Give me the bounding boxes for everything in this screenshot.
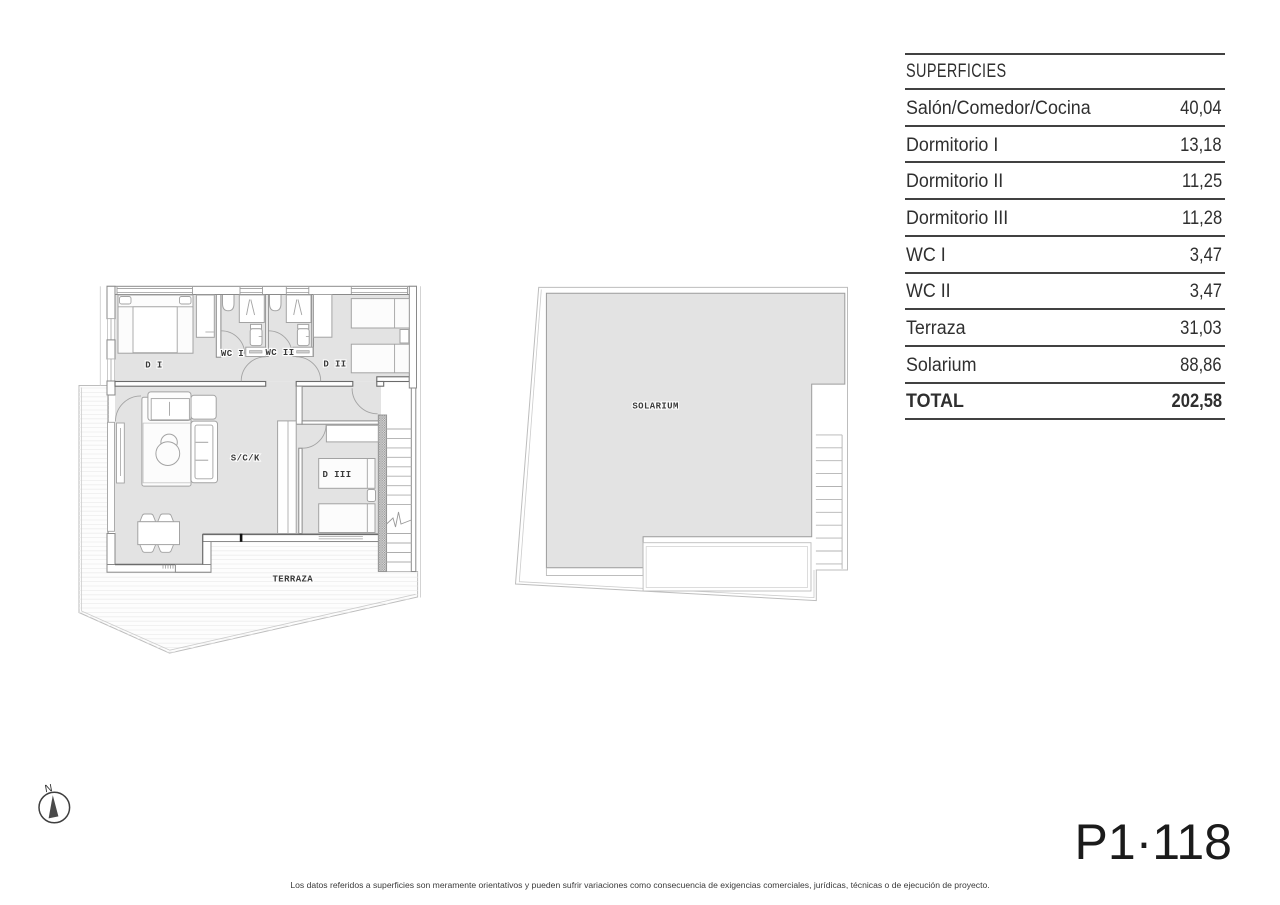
svg-text:D III: D III bbox=[322, 470, 351, 480]
svg-text:SOLARIUM: SOLARIUM bbox=[632, 401, 678, 411]
svg-text:D II: D II bbox=[323, 360, 346, 370]
svg-text:S/C/K: S/C/K bbox=[231, 454, 260, 464]
svg-text:D I: D I bbox=[145, 360, 162, 370]
svg-text:WC II: WC II bbox=[265, 348, 294, 358]
svg-text:TERRAZA: TERRAZA bbox=[272, 575, 313, 585]
svg-text:WC I: WC I bbox=[221, 349, 244, 359]
svg-text:N: N bbox=[44, 782, 54, 795]
